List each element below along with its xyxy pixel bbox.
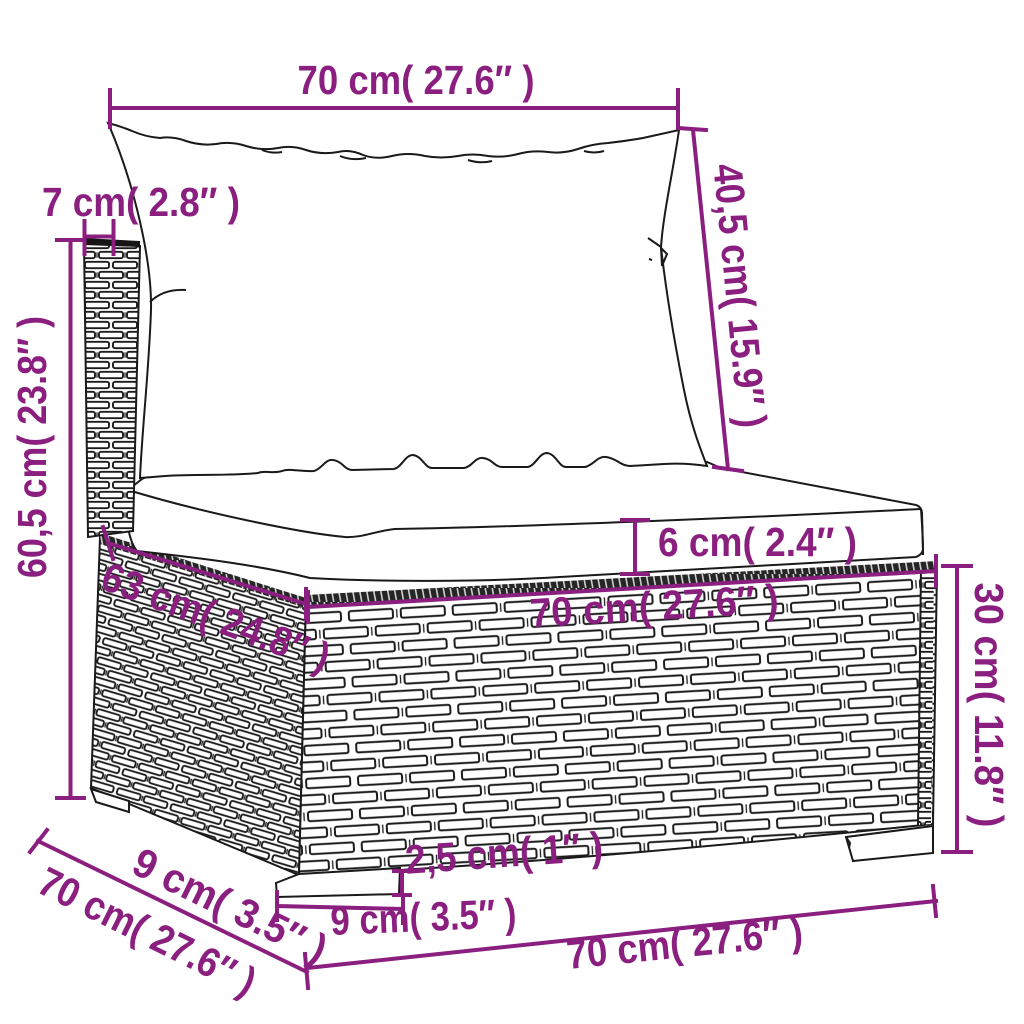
svg-text:7 cm( 2.8″ ): 7 cm( 2.8″ ) <box>42 179 240 225</box>
svg-text:9 cm( 3.5″ ): 9 cm( 3.5″ ) <box>329 890 517 944</box>
svg-text:6 cm( 2.4″ ): 6 cm( 2.4″ ) <box>658 519 857 565</box>
svg-text:30 cm( 11.8″ ): 30 cm( 11.8″ ) <box>966 583 1012 828</box>
svg-text:60,5 cm( 23.8″ ): 60,5 cm( 23.8″ ) <box>9 316 55 578</box>
svg-text:70 cm( 27.6″ ): 70 cm( 27.6″ ) <box>298 57 535 103</box>
